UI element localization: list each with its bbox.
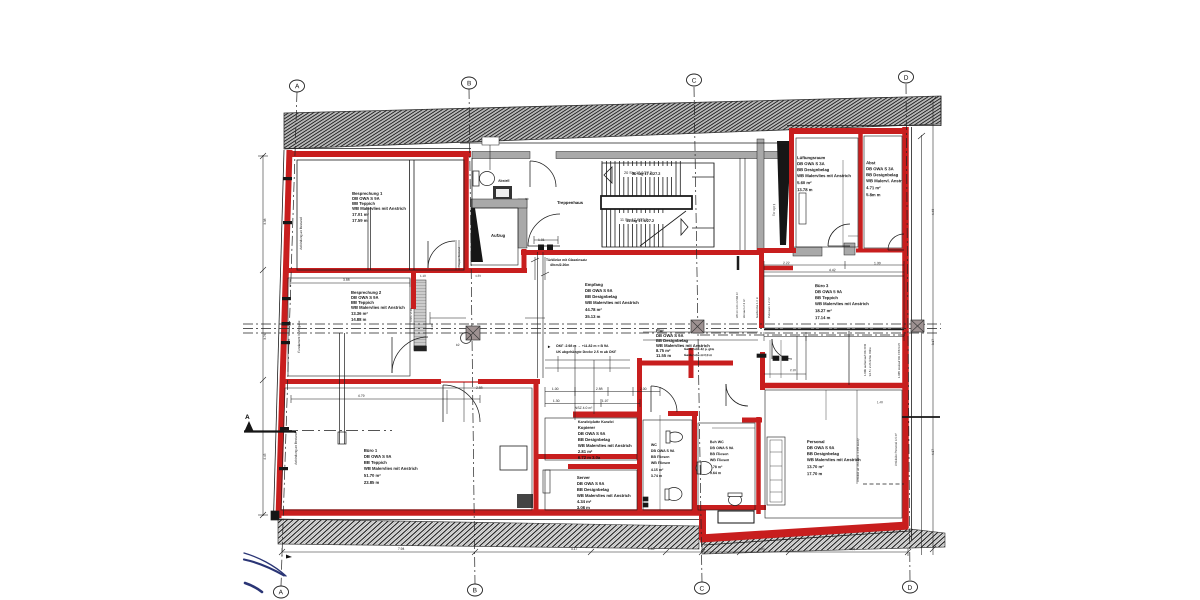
svg-text:13.36 m²: 13.36 m² [351, 311, 368, 316]
svg-text:BB Fliesen: BB Fliesen [710, 452, 729, 456]
svg-text:WB Malervlies mit Anstrich: WB Malervlies mit Anstrich [807, 457, 861, 462]
svg-text:DB OWA 5 9A: DB OWA 5 9A [815, 289, 842, 294]
svg-text:23.85 m: 23.85 m [364, 480, 380, 485]
svg-text:D: D [907, 585, 912, 592]
svg-text:A: A [279, 589, 284, 596]
svg-text:3.74 m: 3.74 m [651, 474, 662, 478]
svg-text:DB OWA S 3A: DB OWA S 3A [866, 166, 894, 171]
svg-text:3.08 m: 3.08 m [577, 505, 590, 510]
svg-text:Putzraum 1.2 m²: Putzraum 1.2 m² [767, 297, 771, 318]
svg-text:90: 90 [525, 197, 529, 201]
svg-text:BB Designbelag: BB Designbelag [807, 451, 840, 456]
svg-text:Personal: Personal [807, 439, 825, 444]
svg-text:4.79: 4.79 [358, 394, 365, 398]
svg-text:17.70 m: 17.70 m [807, 471, 823, 476]
svg-text:20 Stg 17.6/27.2: 20 Stg 17.6/27.2 [632, 172, 660, 176]
svg-text:2.20: 2.20 [758, 547, 765, 551]
svg-text:WB Malervlies mit Anstrich: WB Malervlies mit Anstrich [351, 305, 405, 310]
svg-text:C: C [692, 78, 697, 85]
svg-text:17.01 m²: 17.01 m² [352, 212, 369, 217]
svg-text:B: B [473, 587, 477, 594]
svg-text:BB Designbelag: BB Designbelag [866, 172, 899, 177]
svg-text:BB Designbelag: BB Designbelag [585, 294, 618, 299]
svg-text:1.10: 1.10 [420, 274, 426, 278]
svg-text:WB Malervl. Anstr: WB Malervl. Anstr [866, 178, 902, 183]
svg-text:Anbindung an Bestand: Anbindung an Bestand [294, 432, 298, 464]
svg-text:2.00: 2.00 [640, 387, 647, 391]
svg-text:Umkleide Personal 4.6 m²: Umkleide Personal 4.6 m² [894, 433, 898, 466]
svg-text:WB Malervlies mit Anstrich: WB Malervlies mit Anstrich [352, 206, 406, 211]
svg-text:4.39: 4.39 [475, 274, 481, 278]
svg-text:OKF -2.98 m → +11.82 m = B 9A: OKF -2.98 m → +11.82 m = B 9A [556, 344, 609, 348]
svg-text:WC: WC [651, 443, 657, 447]
svg-text:DB OWA S 9A: DB OWA S 9A [585, 288, 613, 293]
svg-text:UK abgehängte Decke 2.5 m ab O: UK abgehängte Decke 2.5 m ab OKF [556, 350, 617, 354]
svg-text:D: D [904, 75, 909, 82]
svg-text:2.88: 2.88 [596, 387, 603, 391]
svg-text:5.60 m²: 5.60 m² [797, 180, 812, 185]
svg-text:Aufzug: Aufzug [491, 233, 506, 238]
svg-text:4.43: 4.43 [263, 453, 267, 459]
svg-text:3.88: 3.88 [343, 278, 350, 282]
svg-text:1.96 / 2.10: 1.96 / 2.10 [409, 308, 413, 322]
svg-text:35.13 m: 35.13 m [585, 314, 601, 319]
svg-text:Abst: Abst [866, 160, 876, 165]
svg-text:7.94: 7.94 [398, 547, 405, 551]
svg-text:Türklinke mit Glaseinsatz: Türklinke mit Glaseinsatz [546, 258, 587, 262]
svg-text:WC-D 1.01 m² BB Fl: WC-D 1.01 m² BB Fl [735, 292, 739, 318]
svg-text:WB Malervlies mit Anstrich: WB Malervlies mit Anstrich [578, 443, 632, 448]
svg-text:Fundament lt. Vorgabe: Fundament lt. Vorgabe [297, 320, 301, 352]
svg-text:DB OWA S 9A: DB OWA S 9A [364, 454, 392, 459]
svg-text:Empfang: Empfang [585, 282, 603, 287]
svg-text:4.42: 4.42 [829, 268, 836, 272]
svg-text:5.8m m: 5.8m m [866, 192, 881, 197]
svg-text:4.71 m²: 4.71 m² [866, 185, 881, 190]
svg-text:94.5 / 2.26 lichte Höhe: 94.5 / 2.26 lichte Höhe [868, 347, 872, 376]
svg-text:13.70 m²: 13.70 m² [807, 464, 824, 469]
svg-text:3.17: 3.17 [571, 547, 578, 551]
svg-text:DB OWA S 9A: DB OWA S 9A [651, 449, 675, 453]
svg-text:Vorraum 2.3 m²: Vorraum 2.3 m² [742, 299, 746, 318]
svg-text:DB OWA S 3A: DB OWA S 3A [797, 161, 825, 166]
svg-text:Garderobe 1.6 m: Garderobe 1.6 m [755, 296, 759, 318]
svg-text:WB Malervlies mit Anstrich: WB Malervlies mit Anstrich [797, 173, 851, 178]
svg-text:44.78 m²: 44.78 m² [585, 307, 602, 312]
svg-text:1.00: 1.00 [552, 387, 559, 391]
svg-text:BB Designbelag: BB Designbelag [578, 437, 611, 442]
svg-text:1.30: 1.30 [553, 399, 560, 403]
svg-text:A: A [245, 414, 250, 421]
svg-text:Büro 1: Büro 1 [364, 448, 378, 453]
svg-text:BB Designbelag: BB Designbelag [797, 167, 830, 172]
svg-text:6.72 m 3.0a: 6.72 m 3.0a [578, 455, 601, 460]
svg-text:1.40: 1.40 [648, 547, 655, 551]
svg-text:2.81 m²: 2.81 m² [578, 449, 593, 454]
svg-text:11.55 m: 11.55 m [656, 353, 671, 358]
svg-text:NSZ 4.0 m²: NSZ 4.0 m² [575, 406, 593, 410]
svg-text:1.97: 1.97 [602, 399, 609, 403]
svg-text:13.78 m: 13.78 m [797, 187, 813, 192]
svg-text:Beh WC: Beh WC [710, 440, 724, 444]
svg-text:18.27 m²: 18.27 m² [815, 308, 832, 313]
svg-text:DB OWA S 9A: DB OWA S 9A [807, 445, 835, 450]
svg-text:1.48: 1.48 [877, 400, 883, 404]
svg-text:17.59 m: 17.59 m [352, 218, 368, 223]
svg-text:BB Teppich: BB Teppich [364, 460, 387, 465]
svg-text:3.76: 3.76 [263, 333, 267, 339]
svg-text:1.085 süd/auf OK FFB 94.5: 1.085 süd/auf OK FFB 94.5 [897, 343, 901, 379]
svg-text:Büro 3: Büro 3 [815, 283, 829, 288]
svg-text:WB Malervlies mit Anstrich: WB Malervlies mit Anstrich [364, 466, 418, 471]
svg-text:9.64 m: 9.64 m [710, 471, 721, 475]
svg-text:1.08b außen/auf OK FFB: 1.08b außen/auf OK FFB [863, 344, 867, 376]
svg-text:2.10: 2.10 [790, 368, 796, 372]
svg-text:b2: b2 [456, 343, 460, 347]
svg-text:2.22: 2.22 [783, 261, 790, 265]
svg-text:Tor opt 1: Tor opt 1 [772, 203, 776, 216]
svg-text:DB OWA S 9A: DB OWA S 9A [578, 431, 606, 436]
svg-text:Anbindung an Bestand: Anbindung an Bestand [299, 217, 303, 249]
svg-text:DB OWA S 9A: DB OWA S 9A [710, 446, 734, 450]
svg-text:17.14 m: 17.14 m [815, 315, 831, 320]
svg-text:Garderobe 42 p. gHe: Garderobe 42 p. gHe [684, 347, 715, 351]
svg-text:40cm/2.20m: 40cm/2.20m [550, 263, 569, 267]
svg-text:B: B [467, 80, 471, 87]
svg-text:4.15 m²: 4.15 m² [651, 468, 664, 472]
svg-text:Lüftungsraum: Lüftungsraum [797, 155, 825, 160]
svg-text:C: C [699, 586, 704, 593]
svg-text:WB Malervlies mit Anstrich: WB Malervlies mit Anstrich [577, 493, 631, 498]
svg-text:4.81: 4.81 [849, 547, 856, 551]
svg-text:Umkleid ad 464-A5x1 4 mB aus4y: Umkleid ad 464-A5x1 4 mB aus4y [856, 438, 860, 482]
svg-text:WB Fliesen: WB Fliesen [710, 458, 729, 462]
svg-text:3.38: 3.38 [263, 218, 267, 224]
svg-text:Server: Server [577, 475, 590, 480]
svg-text:BB Designbelag: BB Designbelag [577, 487, 610, 492]
svg-text:Kopierer: Kopierer [578, 425, 596, 430]
svg-text:1.30: 1.30 [874, 261, 881, 265]
svg-text:Abstell: Abstell [498, 179, 509, 183]
svg-text:3.10: 3.10 [430, 324, 434, 330]
svg-text:WB Malervlies mit Anstrich: WB Malervlies mit Anstrich [585, 300, 639, 305]
svg-text:BB Teppich: BB Teppich [815, 295, 838, 300]
svg-text:4.34 m²: 4.34 m² [577, 499, 592, 504]
svg-text:A: A [295, 83, 300, 90]
svg-text:14.88 m: 14.88 m [351, 317, 367, 322]
svg-text:WB Malervlies mit Anstrich: WB Malervlies mit Anstrich [815, 301, 869, 306]
svg-text:DB OWA S 9A: DB OWA S 9A [577, 481, 605, 486]
svg-text:Kanzleiplatte Kanzlei: Kanzleiplatte Kanzlei [578, 420, 614, 424]
svg-text:▸: ▸ [547, 344, 551, 349]
svg-text:51.70 m²: 51.70 m² [364, 473, 381, 478]
svg-text:WB Fliesen: WB Fliesen [651, 461, 670, 465]
svg-text:11 Stg 17.6/27.2: 11 Stg 17.6/27.2 [626, 219, 654, 223]
svg-text:Treppenhaus: Treppenhaus [557, 200, 584, 205]
